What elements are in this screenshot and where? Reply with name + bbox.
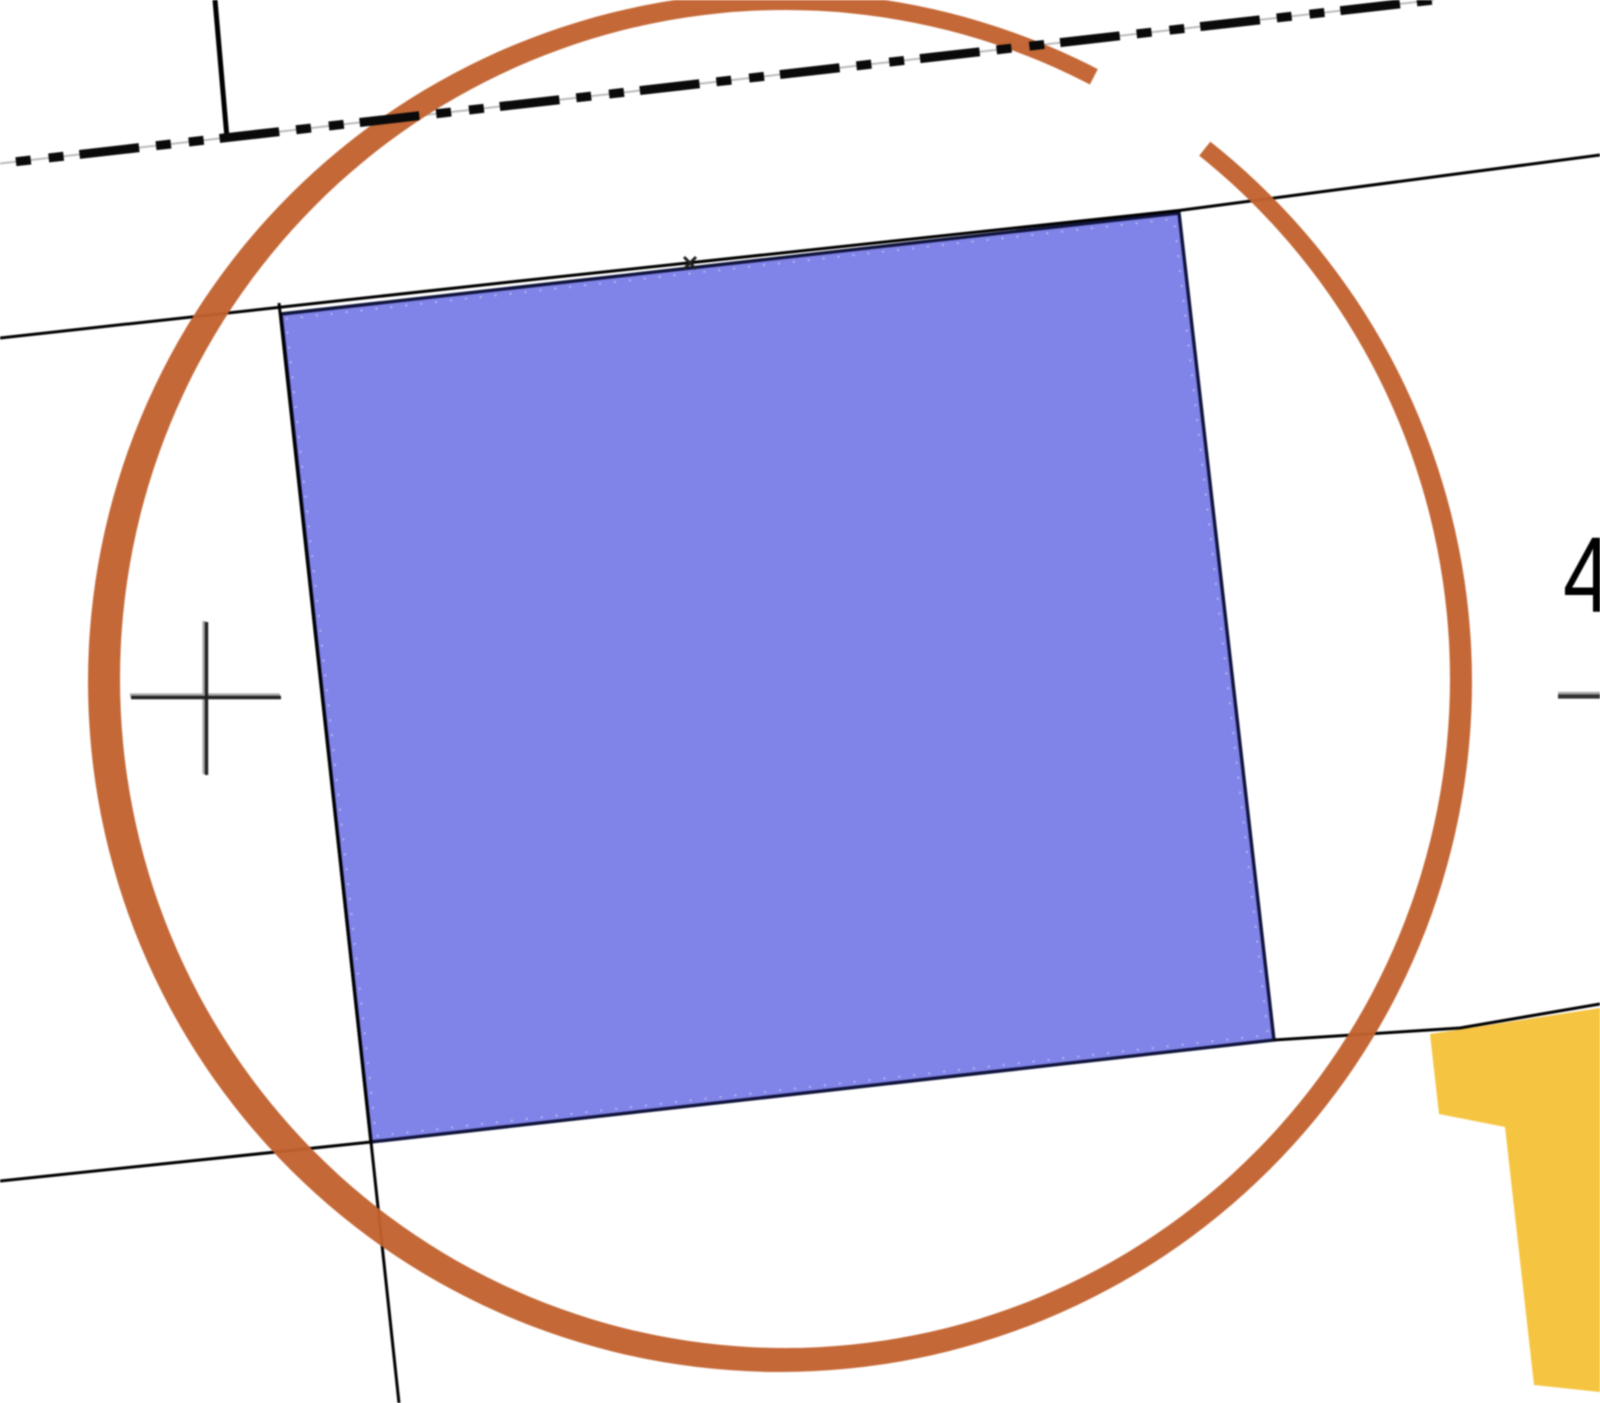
svg-text:4: 4 — [1563, 514, 1600, 635]
